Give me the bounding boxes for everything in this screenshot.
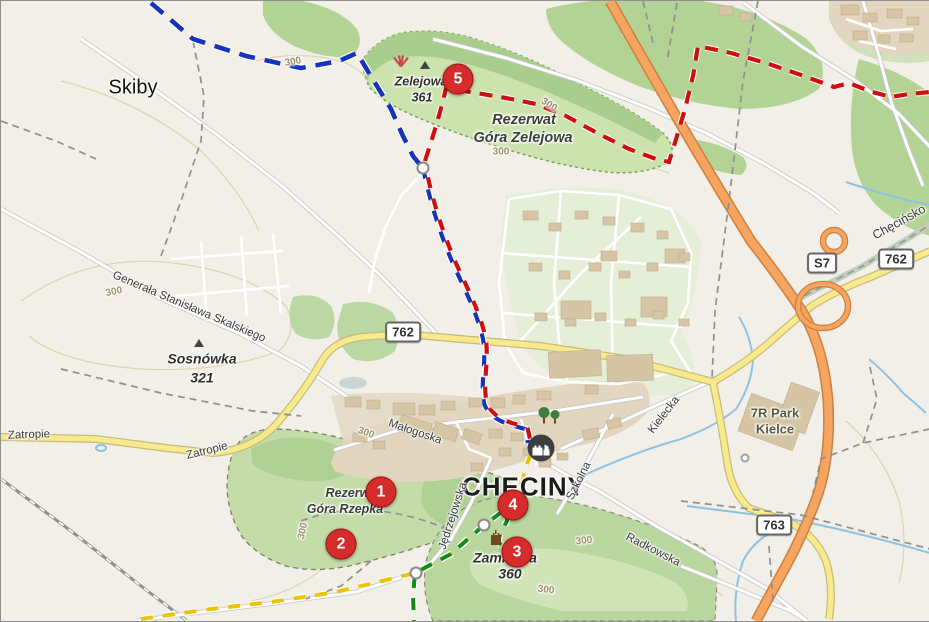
park-trees-icon: [537, 405, 563, 430]
reserve-label-zelejowa-line1: Rezerwat: [492, 112, 556, 128]
map-canvas[interactable]: Skiby CHĘCINY Zelejowa 361 Sosnówka 321 …: [0, 0, 929, 622]
map-marker-4[interactable]: 4: [498, 490, 529, 521]
map-marker-3[interactable]: 3: [502, 537, 533, 568]
castle-museum-icon[interactable]: [528, 435, 555, 462]
map-marker-2[interactable]: 2: [326, 529, 357, 560]
peak-name-sosnowka: Sosnówka: [167, 351, 236, 368]
village-label-skiby: Skiby: [109, 77, 158, 100]
castle-icon-zamkowa: [489, 530, 503, 550]
road-badge-762-west: 762: [385, 322, 421, 343]
place-label-zatropie-1: Zatropie: [8, 428, 51, 441]
peak-elev-zamkowa: 360: [498, 566, 521, 583]
trail-waypoint[interactable]: [410, 567, 423, 580]
contour-label: 300: [537, 584, 555, 597]
reserve-label-zelejowa-line2: Góra Zelejowa: [473, 130, 572, 146]
small-poi-icon: [741, 454, 750, 463]
peak-elev-sosnowka: 321: [190, 370, 213, 387]
map-marker-1[interactable]: 1: [366, 477, 397, 508]
peak-elev-zelejowa: 361: [412, 91, 433, 106]
poi-label-7r-park-line1: 7R Park: [751, 406, 799, 421]
road-badge-763: 763: [756, 515, 792, 536]
map-marker-5[interactable]: 5: [443, 64, 474, 95]
road-badge-s7: S7: [807, 253, 837, 274]
peak-icon-zelejowa: [420, 56, 430, 74]
contour-label: 300: [493, 147, 510, 158]
peak-name-zelejowa: Zelejowa: [395, 75, 448, 90]
viewpoint-icon: [391, 54, 411, 73]
poi-label-7r-park-line2: Kielce: [756, 422, 794, 437]
trail-waypoint[interactable]: [478, 519, 491, 532]
road-badge-762-east: 762: [878, 249, 914, 270]
trail-waypoint[interactable]: [417, 162, 430, 175]
peak-icon-sosnowka: [194, 334, 204, 352]
contour-label: 300: [575, 535, 593, 548]
